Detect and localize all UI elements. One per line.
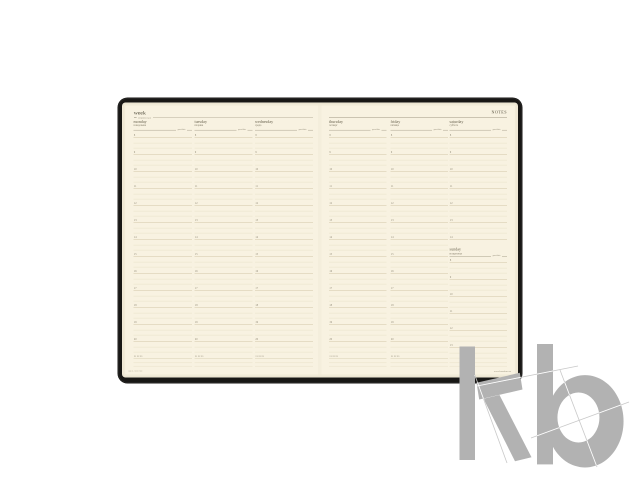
svg-text:21 22 23: 21 22 23 <box>195 355 204 358</box>
svg-text:NOTES: NOTES <box>492 110 508 115</box>
svg-text:дата/date: дата/date <box>434 129 442 131</box>
svg-text:дата/date: дата/date <box>299 129 307 131</box>
svg-text:21 22 23: 21 22 23 <box>255 355 264 358</box>
svg-text:вторник: вторник <box>195 123 204 127</box>
svg-text:week: week <box>134 110 146 116</box>
svg-text:21 22 23: 21 22 23 <box>391 355 400 358</box>
svg-text:дата/date: дата/date <box>238 129 246 131</box>
svg-text:идеи, заметки: идеи, заметки <box>128 369 143 372</box>
svg-text:www.kanzburo.ru: www.kanzburo.ru <box>494 370 512 373</box>
svg-text:пятница: пятница <box>391 123 400 127</box>
svg-text:воскресенье: воскресенье <box>450 252 463 256</box>
svg-text:суббота: суббота <box>450 123 459 127</box>
svg-text:21 22 23: 21 22 23 <box>134 355 143 358</box>
svg-text:четверг: четверг <box>329 123 338 127</box>
svg-text:дата/date: дата/date <box>372 129 380 131</box>
svg-text:21 22 23: 21 22 23 <box>329 355 338 358</box>
svg-text:среда: среда <box>255 123 262 127</box>
svg-text:понедельник: понедельник <box>134 123 147 127</box>
svg-text:дата/date: дата/date <box>493 129 501 131</box>
svg-text:дата/date: дата/date <box>178 129 186 131</box>
svg-text:дата/date: дата/date <box>493 255 501 257</box>
